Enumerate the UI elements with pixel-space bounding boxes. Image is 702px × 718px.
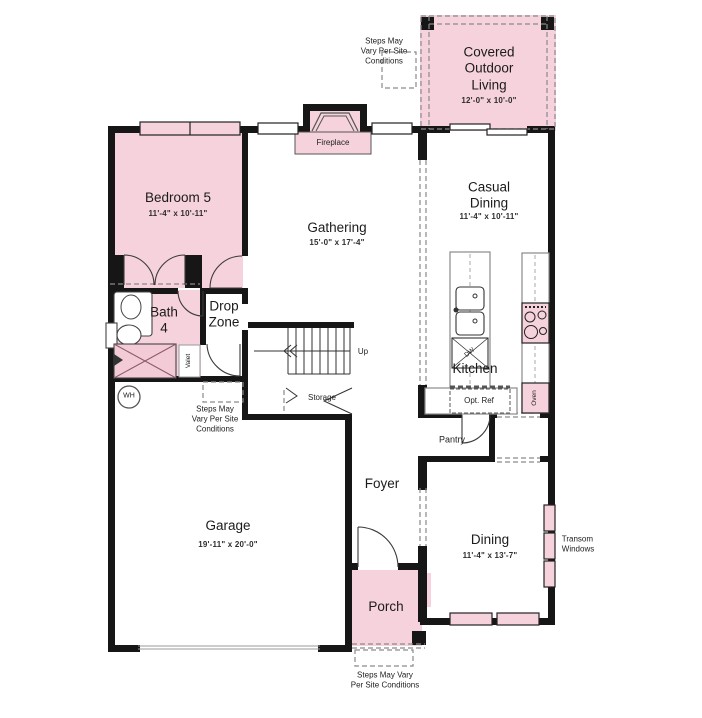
- front-door: [358, 527, 398, 567]
- transom-window: [544, 505, 555, 531]
- room-label-pantry: Pantry: [439, 435, 465, 446]
- closet-french-doors: [124, 255, 185, 285]
- pantry-door: [462, 415, 490, 443]
- room-dims-gathering: 15'-0" x 17'-4": [309, 238, 364, 248]
- drop-zone-door: [207, 344, 240, 376]
- sink-basin-icon: [456, 287, 484, 310]
- room-dims-dining: 11'-4" x 13'-7": [463, 551, 518, 561]
- fireplace-label: Fireplace: [317, 138, 350, 148]
- up-label: Up: [358, 347, 368, 357]
- room-dims-casual-dining: 11'-4" x 10'-11": [459, 212, 518, 222]
- gathering-window: [258, 123, 298, 134]
- oven-label: Oven: [531, 390, 539, 406]
- opt-ref-label: Opt. Ref: [464, 396, 494, 406]
- bath4-door: [178, 291, 203, 316]
- note-steps-top: Steps May Vary Per Site Conditions: [361, 36, 408, 65]
- gathering-window: [372, 123, 412, 134]
- valet-label: Valet: [185, 354, 193, 368]
- note-steps-bottom: Steps May Vary Per Site Conditions: [351, 670, 419, 690]
- room-label-foyer: Foyer: [365, 476, 400, 492]
- sink-basin-icon: [456, 312, 484, 335]
- sliding-door: [450, 124, 490, 130]
- room-dims-garage: 19'-11" x 20'-0": [198, 540, 258, 550]
- room-label-bedroom5: Bedroom 5: [145, 190, 211, 206]
- room-label-drop-zone: Drop Zone: [209, 299, 240, 332]
- dining-window: [497, 613, 539, 625]
- room-label-garage: Garage: [205, 518, 250, 534]
- storage-label: Storage: [308, 393, 336, 403]
- transom-windows-label: Transom Windows: [562, 534, 594, 554]
- floor-plan-linework: [0, 0, 702, 718]
- room-dims-covered-outdoor-living: 12'-0" x 10'-0": [461, 96, 516, 106]
- room-label-bath4: Bath 4: [150, 305, 178, 338]
- floor-plan: Covered Outdoor Living 12'-0" x 10'-0" S…: [0, 0, 702, 718]
- note-steps-mid: Steps May Vary Per Site Conditions: [192, 404, 239, 433]
- garage-door: [138, 646, 320, 649]
- room-label-porch: Porch: [368, 599, 403, 615]
- dining-window: [450, 613, 492, 625]
- room-label-covered-outdoor-living: Covered Outdoor Living: [463, 44, 514, 93]
- sliding-door: [487, 129, 527, 135]
- stairs: [254, 328, 352, 414]
- room-dims-bedroom5: 11'-4" x 10'-11": [148, 209, 207, 219]
- room-label-gathering: Gathering: [307, 220, 366, 236]
- transom-window: [544, 561, 555, 587]
- bedroom5-door: [210, 256, 242, 288]
- transom-window: [544, 533, 555, 559]
- room-label-dining: Dining: [471, 532, 509, 548]
- water-heater-label: WH: [123, 393, 135, 402]
- room-label-kitchen: Kitchen: [452, 361, 497, 377]
- room-label-casual-dining: Casual Dining: [468, 180, 510, 213]
